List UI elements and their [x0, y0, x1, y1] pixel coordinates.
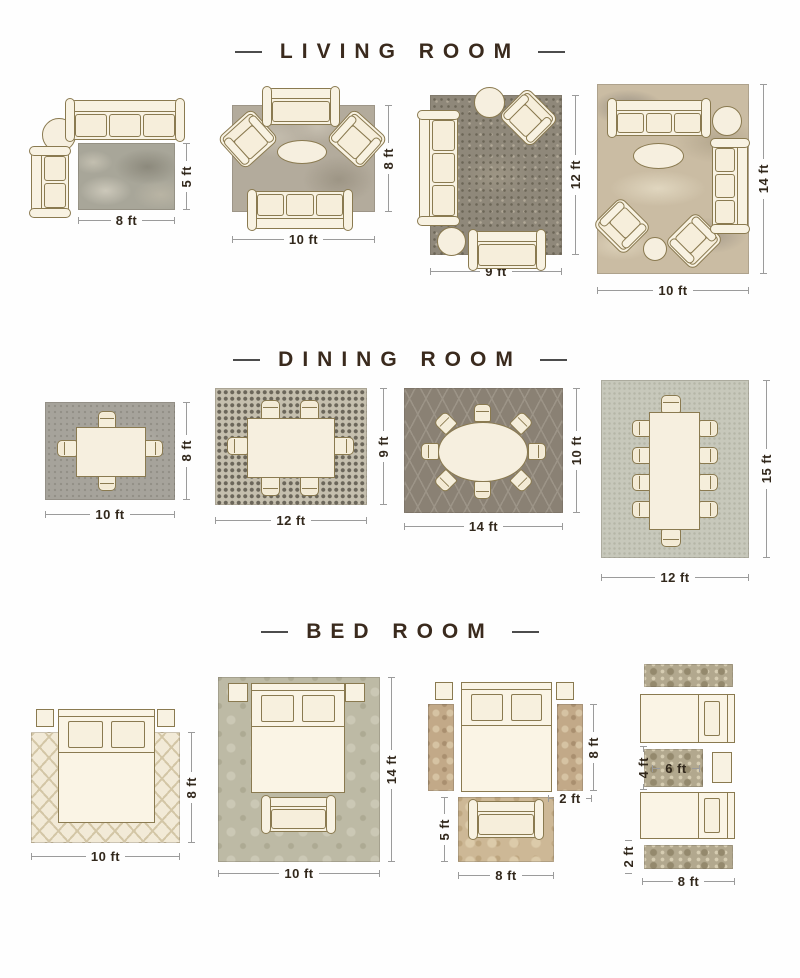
sofa-back [270, 89, 332, 99]
bench-arm [534, 799, 544, 840]
cushion [432, 185, 455, 216]
width-dimension: 10 ft [45, 507, 175, 522]
nightstand [556, 682, 574, 700]
sofa-back [255, 218, 345, 228]
headboard [252, 684, 344, 691]
height-dimension: 10 ft [569, 388, 584, 513]
pillow [471, 694, 503, 721]
pillow [302, 695, 335, 722]
pillow [261, 695, 294, 722]
sofa-arm [607, 98, 617, 138]
dining-chair [699, 501, 718, 518]
sofa-arm [65, 98, 75, 142]
sofa [419, 110, 458, 226]
dining-table-oval [438, 422, 528, 482]
pillow [704, 701, 721, 737]
bed [58, 709, 155, 823]
nightstand [435, 682, 453, 700]
cushion [271, 809, 326, 829]
living-room-section-title: LIVING ROOM [0, 40, 800, 64]
section-title-text: LIVING ROOM [280, 40, 520, 64]
bed-room-section-title: BED ROOM [0, 620, 800, 644]
width-dimension: 10 ft [232, 232, 375, 247]
dining-chair [300, 476, 319, 496]
section-title-text: DINING ROOM [278, 348, 522, 372]
sofa-arm [710, 138, 750, 148]
dining-chair [474, 404, 491, 422]
twin-bed [640, 694, 735, 743]
dining-chair [661, 529, 681, 547]
small-rug-height-dimension: 4 ft [636, 746, 651, 790]
pillow [68, 721, 103, 748]
bench-arm [261, 795, 271, 834]
cushion [478, 814, 534, 835]
width-dimension: 8 ft [78, 213, 175, 228]
cushion [432, 153, 455, 184]
dining-chair [699, 474, 718, 491]
cushion [432, 120, 455, 151]
cushion [44, 156, 66, 181]
dining-chair [143, 440, 163, 457]
title-dash-right [538, 51, 565, 53]
loveseat [468, 231, 546, 269]
dining-table [76, 427, 146, 477]
sofa-arm [247, 189, 257, 231]
title-dash-left [235, 51, 262, 53]
sofa-arm [175, 98, 185, 142]
height-dimension: 8 ft [184, 732, 199, 843]
bench-arm [326, 795, 336, 834]
cushion [316, 194, 343, 216]
dining-table [649, 412, 700, 530]
cushion [715, 148, 735, 172]
sofa-arm [29, 146, 71, 156]
cushion [75, 114, 107, 137]
sofa-arm [262, 86, 272, 127]
nightstand [712, 752, 732, 783]
dining-chair [300, 400, 319, 420]
sofa-arm [701, 98, 711, 138]
foot-rug-height-dimension: 5 ft [437, 797, 452, 862]
height-dimension: 14 ft [384, 677, 399, 862]
width-dimension: 10 ft [597, 283, 749, 298]
sofa-back [476, 232, 538, 242]
width-dimension: 10 ft [31, 849, 180, 864]
bed [251, 683, 345, 793]
bench-back [476, 802, 536, 812]
bench-arm [468, 799, 478, 840]
sofa-back [737, 146, 747, 226]
title-dash-left [261, 631, 288, 633]
width-dimension: 10 ft [218, 866, 380, 881]
dining-room-section-title: DINING ROOM [0, 348, 800, 372]
section-title-text: BED ROOM [306, 620, 494, 644]
runner-width-dimension: 2 ft [548, 791, 592, 806]
runner-length-dimension: 8 ft [586, 704, 601, 791]
foot-rug-width-dimension: 8 ft [458, 868, 554, 883]
cushion [109, 114, 141, 137]
height-dimension: 15 ft [759, 380, 774, 558]
cushion [143, 114, 175, 137]
bench [261, 797, 336, 832]
sofa [247, 191, 353, 229]
nightstand [345, 683, 365, 702]
dining-chair [333, 437, 354, 455]
bench [468, 801, 544, 838]
loveseat [262, 88, 340, 125]
headboard [462, 683, 551, 690]
width-dimension: 14 ft [404, 519, 563, 534]
side-table-round [712, 106, 742, 136]
runner-width-dimension: 2 ft [621, 840, 636, 874]
dining-chair [261, 400, 280, 420]
dining-chair [474, 481, 491, 499]
bench-back [269, 798, 328, 807]
small-rug-width-dimension: 6 ft [652, 761, 700, 776]
sofa-arm [468, 229, 478, 271]
dining-chair [528, 443, 546, 460]
coffee-table-oval [633, 143, 684, 169]
runner-rug [428, 704, 454, 791]
cushion [715, 174, 735, 198]
dining-chair [261, 476, 280, 496]
height-dimension: 8 ft [381, 105, 396, 212]
sofa-arm [417, 216, 460, 226]
sofa-back [32, 154, 42, 210]
cushion [674, 113, 701, 133]
cushion [44, 183, 66, 208]
cushion [715, 200, 735, 224]
side-table-round [643, 237, 667, 261]
sofa-arm [29, 208, 71, 218]
side-table-round [437, 227, 466, 256]
pillow [704, 798, 721, 832]
sofa-back [615, 101, 703, 111]
area-rug [78, 143, 175, 210]
height-dimension: 9 ft [376, 388, 391, 505]
sofa-arm [343, 189, 353, 231]
sofa-back [73, 101, 177, 112]
bed-body [641, 695, 698, 742]
dining-chair [227, 437, 248, 455]
title-dash-left [233, 359, 260, 361]
dining-chair [699, 447, 718, 464]
height-dimension: 8 ft [179, 402, 194, 500]
cushion [257, 194, 284, 216]
runner-rug [644, 845, 733, 869]
loveseat [31, 146, 69, 218]
bed [461, 682, 552, 792]
height-dimension: 14 ft [756, 84, 771, 274]
sofa [607, 100, 711, 136]
height-dimension: 12 ft [568, 95, 583, 255]
twin-bed [640, 792, 735, 839]
cushion [617, 113, 644, 133]
nightstand [228, 683, 248, 702]
sofa-arm [710, 224, 750, 234]
rug-size-guide: LIVING ROOM 8 ft 5 ft [0, 0, 800, 978]
height-dimension: 5 ft [179, 143, 194, 210]
runner-rug [644, 664, 733, 687]
runner-rug [557, 704, 583, 791]
bed-body [252, 727, 344, 792]
dining-chair [699, 420, 718, 437]
nightstand [157, 709, 175, 727]
cushion [272, 101, 330, 122]
bed-body [462, 726, 551, 791]
headboard [727, 793, 734, 838]
sofa-back [420, 118, 430, 218]
sofa-arm [536, 229, 546, 271]
title-dash-right [540, 359, 567, 361]
width-dimension: 12 ft [215, 513, 367, 528]
headboard [727, 695, 734, 742]
bed-body [59, 753, 154, 822]
sofa-arm [330, 86, 340, 127]
sofa-arm [417, 110, 460, 120]
cushion [478, 244, 536, 266]
dining-table [247, 418, 335, 478]
sofa [712, 138, 748, 234]
sofa [65, 100, 185, 140]
dining-chair [661, 395, 681, 413]
pillow [511, 694, 543, 721]
headboard [59, 710, 154, 717]
runner-length-dimension: 8 ft [642, 874, 735, 889]
bed-body [641, 793, 698, 838]
width-dimension: 12 ft [601, 570, 749, 585]
coffee-table-oval [277, 140, 327, 164]
nightstand [36, 709, 54, 727]
dining-chair [57, 440, 77, 457]
dining-chair [421, 443, 439, 460]
pillow [111, 721, 146, 748]
title-dash-right [512, 631, 539, 633]
cushion [646, 113, 673, 133]
cushion [286, 194, 313, 216]
